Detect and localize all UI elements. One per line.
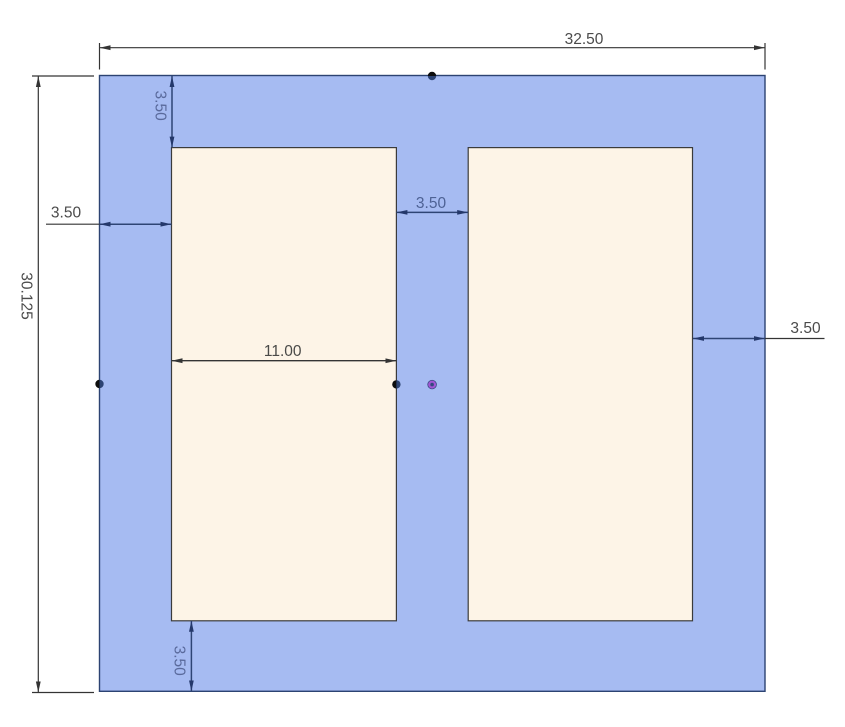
svg-text:32.50: 32.50 [565,31,604,48]
svg-text:3.50: 3.50 [416,195,447,212]
svg-text:3.50: 3.50 [171,646,188,677]
svg-text:3.50: 3.50 [790,320,821,337]
svg-text:3.50: 3.50 [151,91,168,122]
svg-text:30.125: 30.125 [18,272,35,319]
svg-text:3.50: 3.50 [51,205,82,222]
svg-text:11.00: 11.00 [264,343,302,360]
